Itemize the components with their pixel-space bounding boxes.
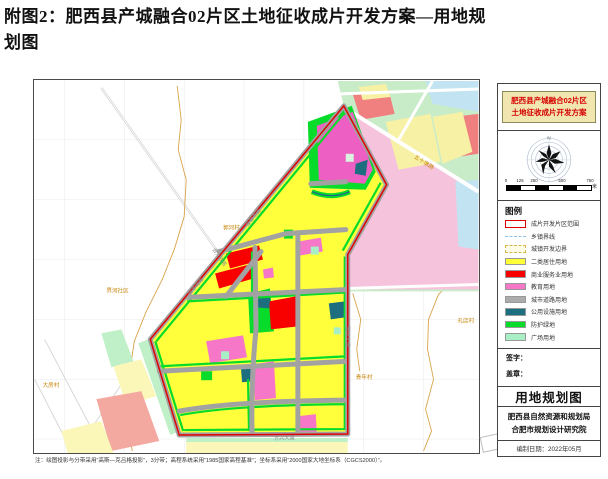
organization-section: 肥西县自然资源和规划局 合肥市规划设计研究院	[498, 407, 600, 441]
place-label: 大房村	[43, 381, 60, 389]
legend-item: 成片开发片区范围	[505, 220, 595, 228]
compass-rose: N	[518, 132, 580, 184]
sheet-name: 用地规划图	[515, 387, 583, 406]
scale-tick: 500	[558, 178, 565, 183]
scale-unit: 米	[592, 183, 597, 190]
sheet-name-section: 用地规划图	[498, 387, 600, 407]
figure-title-line1: 附图2：肥西县产城融合02片区土地征收成片开发方案—用地规	[4, 4, 604, 30]
map-sheet-panel: 肥西县产城融合02片区 土地征收成片开发方案 N 0 125 250 500 7…	[497, 83, 601, 457]
legend-swatch	[505, 296, 526, 304]
plan-title-line1: 肥西县产城融合02片区	[503, 95, 595, 107]
document-page: 附图2：肥西县产城融合02片区土地征收成片开发方案—用地规 划图	[0, 0, 608, 479]
legend-item: 城镇开发边界	[505, 245, 595, 253]
legend-title: 图例	[505, 205, 595, 217]
commercial-parcel	[269, 296, 298, 329]
legend-item: 城市道路用地	[505, 296, 595, 304]
legend-item: 乡镇界线	[505, 233, 595, 241]
legend-swatch	[505, 245, 526, 253]
legend-swatch	[505, 270, 526, 278]
scale-tick: 0	[505, 178, 507, 183]
legend-item: 商业服务业用地	[505, 270, 595, 278]
legend-item: 教育用地	[505, 283, 595, 291]
figure-title: 附图2：肥西县产城融合02片区土地征收成片开发方案—用地规 划图	[4, 4, 604, 57]
road-label: 徽州大道	[344, 326, 352, 347]
place-label: 界河社区	[106, 286, 129, 294]
legend-swatch	[505, 283, 526, 291]
legend-swatch	[505, 236, 526, 237]
place-label: 孔店村	[457, 316, 474, 324]
scale-tick: 125	[516, 178, 523, 183]
date-section: 编制日期：2022年05月	[498, 441, 600, 456]
north-label: N	[547, 136, 551, 142]
map-canvas: 金寨南路 金寨南路 徽州大道 方兴大道 五十墩路 合九铁路 郭河村 界河社区 大…	[34, 80, 479, 453]
figure-title-line2: 划图	[4, 30, 604, 56]
compass-section: N 0 125 250 500 750 米	[498, 131, 600, 201]
seal-label: 盖章：	[506, 369, 592, 379]
scale-tick: 250	[530, 178, 537, 183]
legend-swatch	[505, 220, 526, 228]
org-line1: 肥西县自然资源和规划局	[508, 411, 591, 424]
map-footnote: 注：绘图投影与分带采用“高斯—克吕格投影”，3分带；高程系统采用“1985国家高…	[35, 456, 505, 464]
legend-swatch	[505, 308, 526, 316]
legend-section: 图例 成片开发片区范围 乡镇界线 城镇开发边界 二类居住用地 商业服务业用地 教…	[498, 201, 600, 349]
date-line: 编制日期：2022年05月	[516, 444, 581, 453]
place-label: 郭河村	[223, 224, 240, 232]
signature-label: 签字：	[506, 353, 592, 363]
plan-title-section: 肥西县产城融合02片区 土地征收成片开发方案	[498, 84, 600, 131]
legend-swatch	[505, 333, 526, 341]
org-line2: 合肥市规划设计研究院	[512, 424, 587, 437]
legend-item: 广场用地	[505, 333, 595, 341]
legend-swatch	[505, 321, 526, 329]
signature-section: 签字： 盖章：	[498, 349, 600, 387]
legend-item: 二类居住用地	[505, 258, 595, 266]
plan-title-line2: 土地征收成片开发方案	[503, 107, 595, 119]
legend-swatch	[505, 258, 526, 266]
scale-bar	[506, 185, 592, 191]
legend-item: 防护绿地	[505, 321, 595, 329]
map-frame: 金寨南路 金寨南路 徽州大道 方兴大道 五十墩路 合九铁路 郭河村 界河社区 大…	[33, 79, 480, 454]
legend-item: 公用设施用地	[505, 308, 595, 316]
place-label: 青年村	[356, 373, 373, 381]
plan-title-box: 肥西县产城融合02片区 土地征收成片开发方案	[502, 91, 596, 123]
